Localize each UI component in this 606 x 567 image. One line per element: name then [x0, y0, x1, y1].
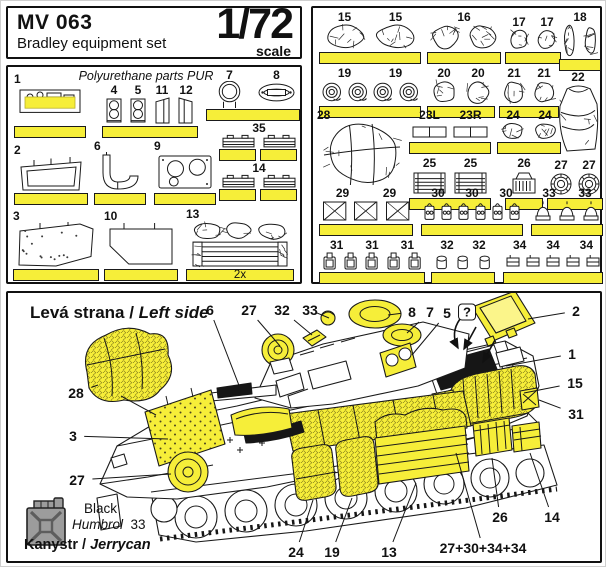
callout-28: 28	[68, 385, 84, 401]
part-group-2: 2	[14, 143, 88, 205]
callout-33: 33	[302, 302, 318, 318]
part-drawing-dome	[582, 199, 600, 223]
part-number-label: 32	[440, 238, 453, 252]
part-drawing-xpanel	[322, 199, 347, 223]
part-number-label: 33	[578, 186, 591, 200]
callout-8: 8	[408, 304, 416, 320]
part-number-label: 30	[431, 186, 444, 200]
diagram-title: Levá strana / Left side	[30, 303, 209, 323]
part-number-label: 34	[546, 238, 559, 252]
part-number-label: 27	[554, 158, 567, 172]
part-number-label: 17	[512, 15, 525, 29]
part-drawing-smallkit	[441, 199, 452, 223]
part-number-label: 14	[252, 161, 265, 175]
part-group-9: 9	[154, 139, 216, 205]
part-number-label: 11	[156, 83, 169, 97]
casting-base	[319, 224, 413, 236]
part-drawing-box	[412, 121, 447, 141]
header-panel: MV 063 Bradley equipment set 1/72 scale	[6, 6, 302, 59]
part-drawing-jerrycan	[364, 251, 379, 271]
parts-panel-right: 151516171718191920202121222823L23R242425…	[311, 6, 602, 284]
part-number-label: 9	[154, 139, 161, 153]
callout-7: 7	[426, 304, 434, 320]
part-drawing-jerrycan	[386, 251, 401, 271]
part-number-label: 4	[111, 83, 118, 97]
part-drawing-smallbox	[262, 174, 297, 188]
part-group-7-8: 78	[206, 68, 300, 121]
casting-base	[154, 193, 216, 205]
casting-base	[497, 142, 561, 154]
part-number-label: 26	[517, 156, 530, 170]
callout-15: 15	[567, 375, 583, 391]
part-group-30-30-30: 303030	[421, 186, 523, 236]
part-group-15-15: 1515	[319, 10, 421, 64]
part-drawing-flat	[526, 251, 540, 271]
part-number-label: 5	[135, 83, 142, 97]
part-number-label: 1	[14, 72, 21, 86]
parts-panel-left: Polyurethane parts PUR 14511127835142693…	[6, 65, 302, 284]
part-drawing-smallbox	[262, 134, 297, 148]
part-number-label: 33	[542, 186, 555, 200]
paint-legend: Black Humbrol 33 Kanystr / Jerrycan	[24, 493, 184, 561]
part-drawing-smallbag	[430, 79, 458, 105]
diagram-title-cs: Levá strana /	[30, 303, 139, 322]
part-group-35: 35	[218, 121, 300, 161]
part-group-16: 16	[427, 10, 501, 64]
part-drawing-smallbag	[500, 121, 526, 141]
part-group-31-31-31: 313131	[319, 238, 425, 284]
part-drawing-dome	[534, 199, 552, 223]
part-group-4-5-11-12: 451112	[102, 83, 198, 138]
part-drawing-tiny	[477, 251, 492, 271]
scale-value: 1/72	[216, 0, 292, 49]
diagram-title-en: Left side	[139, 303, 209, 322]
part-number-label: 8	[273, 68, 280, 82]
callout-1: 1	[568, 346, 576, 362]
part-number-label: 20	[471, 66, 484, 80]
part-group-13: 132x	[186, 207, 294, 281]
part-28-bundle	[86, 328, 172, 401]
part-drawing-flat	[566, 251, 580, 271]
part-number-label: 35	[252, 121, 265, 135]
part-group-10: 10	[104, 209, 178, 281]
callout-27+30+34+34: 27+30+34+34	[440, 540, 527, 556]
part-number-label: 21	[537, 66, 550, 80]
part-group-32-32: 3232	[431, 238, 495, 284]
part-group-29-29: 2929	[319, 186, 413, 236]
part-group-14: 14	[218, 161, 300, 201]
casting-base	[94, 193, 146, 205]
part-drawing-rack	[17, 85, 83, 125]
part-number-label: 34	[513, 238, 526, 252]
part-group-18: 18	[559, 10, 601, 71]
part-26-crate	[473, 418, 512, 456]
part-drawing-flat	[546, 251, 560, 271]
part-number-label: 18	[573, 10, 586, 24]
part-drawing-smallkit	[458, 199, 469, 223]
part-drawing-coil	[373, 79, 393, 105]
callout-13: 13	[381, 544, 397, 560]
part-drawing-bundle	[320, 121, 404, 189]
part-drawing-smallkit	[509, 199, 520, 223]
casting-base	[14, 193, 88, 205]
casting-base	[219, 149, 256, 161]
casting-base: 2x	[186, 269, 294, 281]
casting-base	[104, 269, 178, 281]
part-number-label: 31	[365, 238, 378, 252]
part-group-1: 1	[14, 72, 86, 138]
casting-base	[14, 126, 86, 138]
casting-base	[319, 272, 425, 284]
part-drawing-smallbag	[508, 28, 530, 51]
callout-14: 14	[544, 509, 560, 525]
scale-word: scale	[256, 43, 291, 59]
part-number-label: 12	[179, 83, 192, 97]
part-drawing-bag	[373, 23, 418, 51]
part-drawing-jerrycan	[322, 251, 337, 271]
callout-24: 24	[288, 544, 304, 560]
part-27-wheel	[168, 452, 208, 492]
part-group-3: 3	[13, 209, 99, 281]
part-drawing-gearstack	[189, 220, 291, 268]
part-number-label: 13	[186, 207, 199, 221]
part-number-label: 31	[330, 238, 343, 252]
part-drawing-smallbox	[221, 134, 256, 148]
part-number-label: 15	[338, 10, 351, 24]
part-drawing-bag	[430, 23, 461, 51]
part-drawing-xpanel	[353, 199, 378, 223]
part-drawing-dome	[558, 199, 576, 223]
part-number-label: 7	[226, 68, 233, 82]
part-drawing-ring	[209, 81, 250, 108]
part-24-bags	[292, 445, 336, 501]
casting-base	[260, 189, 297, 201]
part-number-label: 24	[506, 108, 519, 122]
leader-line-31	[539, 400, 561, 408]
part-drawing-smallbag	[464, 79, 492, 105]
part-drawing-smallbox	[221, 174, 256, 188]
leader-line-32	[294, 320, 312, 335]
part-number-label: 34	[580, 238, 593, 252]
part-drawing-smallbag	[536, 28, 558, 51]
part-number-label: 27	[582, 158, 595, 172]
part-drawing-flat	[586, 251, 600, 271]
part-group-34-34-34: 343434	[503, 238, 603, 284]
part-number-label: 31	[401, 238, 414, 252]
callout-26: 26	[492, 509, 508, 525]
casting-base	[531, 224, 603, 236]
part-number-label: 15	[389, 10, 402, 24]
part-number-label: 16	[457, 10, 470, 24]
part-drawing-tiny	[434, 251, 449, 271]
casting-base	[421, 224, 523, 236]
part-drawing-flat	[506, 251, 520, 271]
casting-base	[206, 109, 300, 121]
callout-32: 32	[274, 302, 290, 318]
part-group-23L-23R: 23L23R	[409, 108, 491, 154]
part-group-17-17: 1717	[505, 15, 561, 64]
part-drawing-tallbag	[583, 23, 598, 58]
assembly-diagram-panel: Levá strana / Left side 6273233875?21153…	[6, 291, 602, 563]
part-drawing-sack	[556, 83, 600, 153]
part-drawing-bag	[467, 23, 498, 51]
part-drawing-jerrycan	[407, 251, 422, 271]
leader-line-2	[528, 313, 565, 319]
part-number-label: 3	[13, 209, 20, 223]
part-drawing-smallkit	[475, 199, 486, 223]
callout-5: 5	[443, 305, 451, 321]
part-number-label: 19	[338, 66, 351, 80]
part-drawing-tiny	[455, 251, 470, 271]
casting-base	[505, 52, 561, 64]
casting-base	[13, 269, 99, 281]
part-drawing-tower	[105, 96, 123, 125]
legend-item-name: Kanystr / Jerrycan	[24, 537, 151, 553]
part-number-label: 23L	[419, 108, 440, 122]
part-drawing-tallbag	[562, 23, 577, 58]
callout-2: 2	[572, 303, 580, 319]
casting-base	[102, 126, 198, 138]
part-group-24-24: 2424	[497, 108, 561, 154]
part-drawing-jerrycan	[343, 251, 358, 271]
part-drawing-hook	[97, 152, 143, 192]
part-7-hatch-ring	[383, 324, 421, 346]
part-number-label: 29	[383, 186, 396, 200]
instruction-sheet: MV 063 Bradley equipment set 1/72 scale …	[0, 0, 606, 567]
quantity-note: 2x	[234, 269, 246, 281]
part-number-label: 6	[94, 139, 101, 153]
part-drawing-box	[453, 121, 488, 141]
callout-19: 19	[324, 544, 340, 560]
part-drawing-pent	[107, 222, 175, 268]
part-number-label: 22	[571, 70, 584, 84]
part-drawing-bag	[322, 23, 367, 51]
part-number-label: 25	[423, 156, 436, 170]
callout-6: 6	[206, 302, 214, 318]
kit-name: Bradley equipment set	[17, 35, 166, 52]
part-number-label: 2	[14, 143, 21, 157]
part-group-33-33: 3333	[531, 186, 603, 236]
casting-base	[503, 272, 603, 284]
part-drawing-smallkit	[492, 199, 503, 223]
callout-27: 27	[241, 302, 257, 318]
part-drawing-plate2	[157, 152, 213, 192]
part-drawing-openbox	[17, 156, 85, 192]
casting-base	[319, 52, 421, 64]
part-drawing-coil	[399, 79, 419, 105]
part-number-label: 17	[540, 15, 553, 29]
part-drawing-wedgeL	[153, 96, 171, 125]
part-drawing-coil	[322, 79, 342, 105]
part-group-28: 28	[317, 108, 407, 190]
casting-base	[427, 52, 501, 64]
paint-reference: Humbrol 33	[72, 517, 146, 532]
part-number-label: 30	[499, 186, 512, 200]
part-group-6: 6	[94, 139, 146, 205]
part-drawing-smallbag	[502, 79, 526, 105]
part-number-label: 10	[104, 209, 117, 223]
part-drawing-coil	[348, 79, 368, 105]
part-number-label: 24	[538, 108, 551, 122]
part-number-label: 28	[317, 108, 330, 122]
part-number-label: 29	[336, 186, 349, 200]
part-19-bags	[336, 437, 378, 497]
callout-27: 27	[69, 472, 85, 488]
part-number-label: 30	[465, 186, 478, 200]
callout-31: 31	[568, 406, 584, 422]
kit-number: MV 063	[17, 11, 92, 35]
part-number-label: 20	[437, 66, 450, 80]
part-number-label: 32	[472, 238, 485, 252]
paint-color-name: Black	[84, 501, 117, 516]
part-drawing-wedgeR	[177, 96, 195, 125]
part-drawing-tower	[129, 96, 147, 125]
casting-base	[260, 149, 297, 161]
part-number-label: 25	[464, 156, 477, 170]
casting-base	[431, 272, 495, 284]
callout-unknown: ?	[458, 304, 476, 321]
part-drawing-smallbag	[532, 121, 558, 141]
casting-base	[219, 189, 256, 201]
casting-base	[409, 142, 491, 154]
callout-3: 3	[69, 428, 77, 444]
part-drawing-xpanel	[385, 199, 410, 223]
part-number-label: 23R	[459, 108, 481, 122]
part-number-label: 19	[389, 66, 402, 80]
part-drawing-mat	[16, 222, 96, 268]
part-number-label: 21	[507, 66, 520, 80]
leader-line-6	[214, 320, 240, 388]
part-drawing-oval8	[256, 81, 297, 108]
part-drawing-smallkit	[424, 199, 435, 223]
